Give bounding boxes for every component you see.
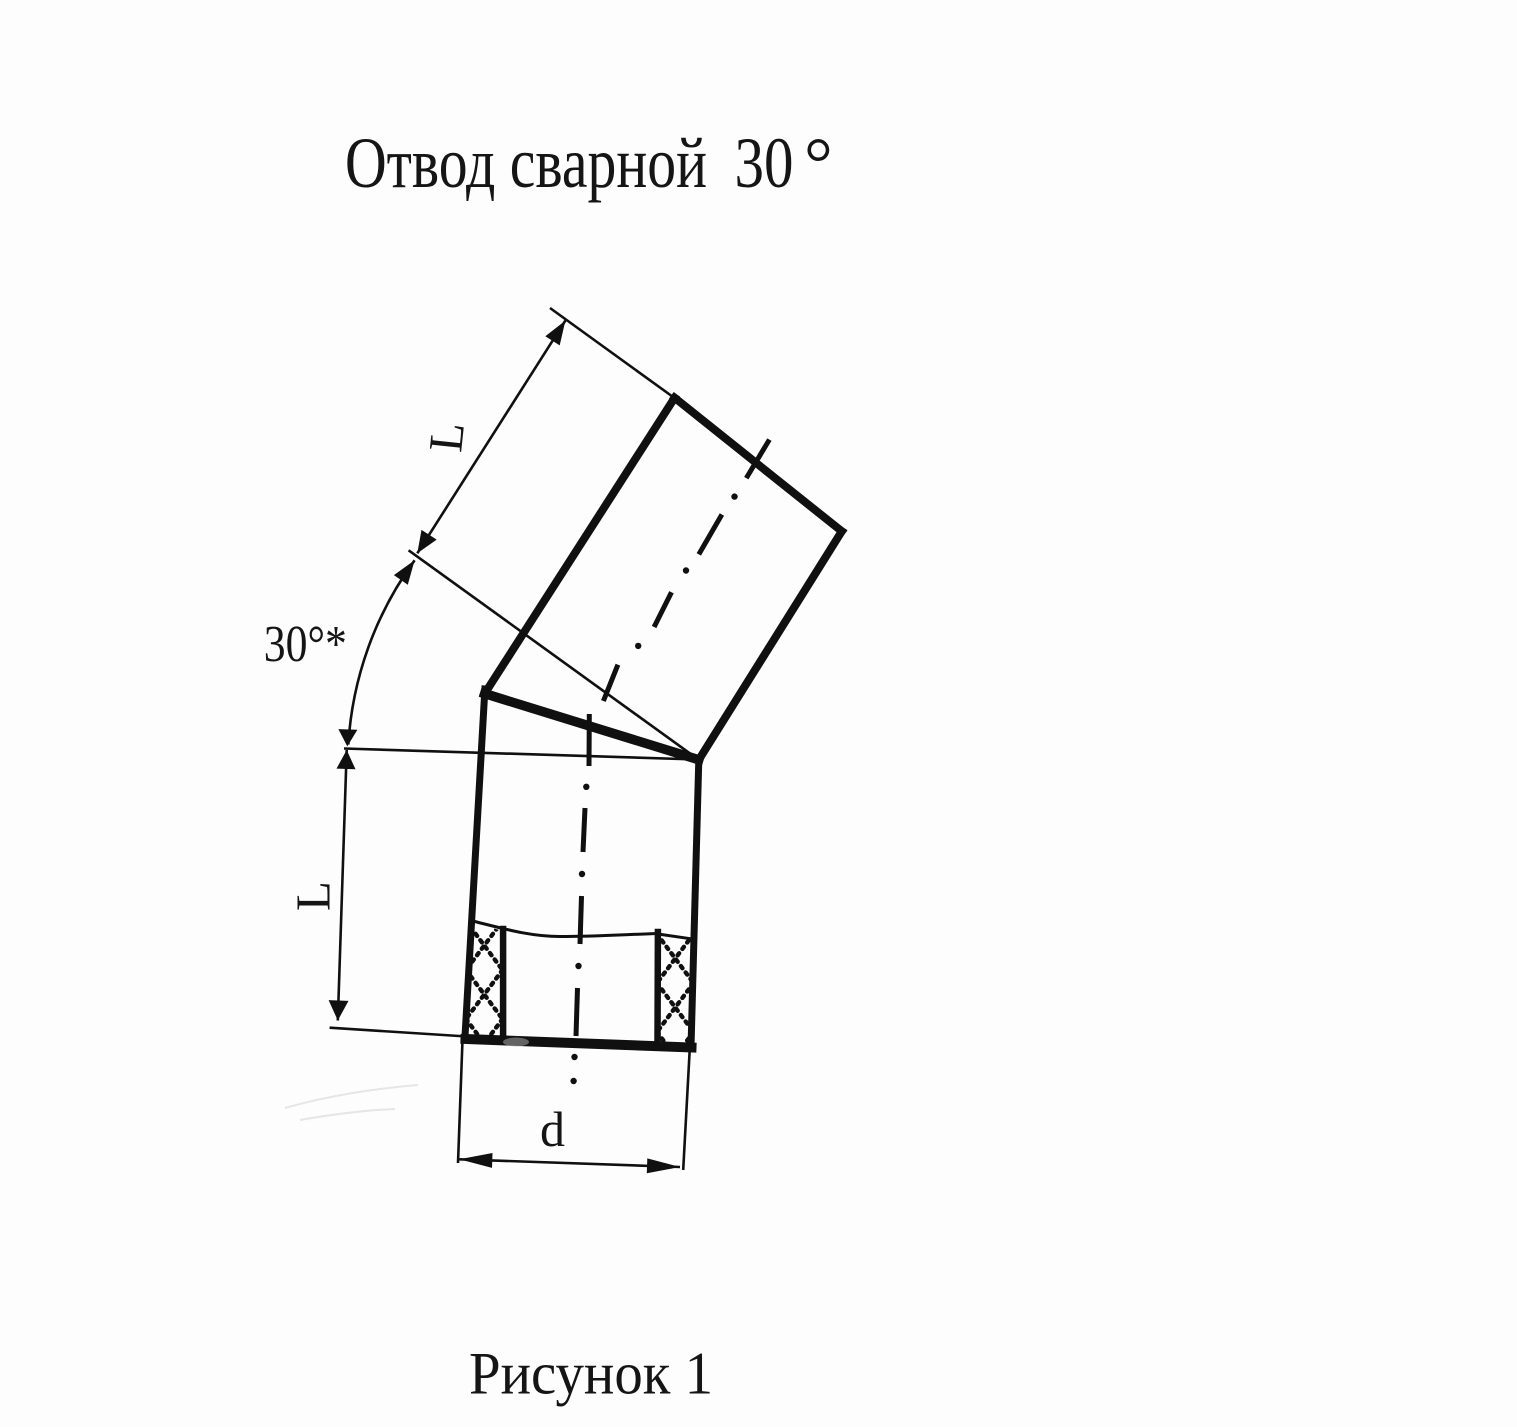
svg-text:30°*: 30°* (264, 616, 347, 673)
svg-text:°: ° (804, 123, 833, 203)
svg-text:L: L (286, 881, 341, 911)
svg-text:d: d (540, 1101, 565, 1157)
svg-text:30: 30 (735, 123, 794, 203)
svg-text:L: L (419, 420, 475, 455)
svg-text:Отвод сварной: Отвод сварной (345, 123, 707, 203)
svg-text:Рисунок 1: Рисунок 1 (469, 1341, 713, 1407)
